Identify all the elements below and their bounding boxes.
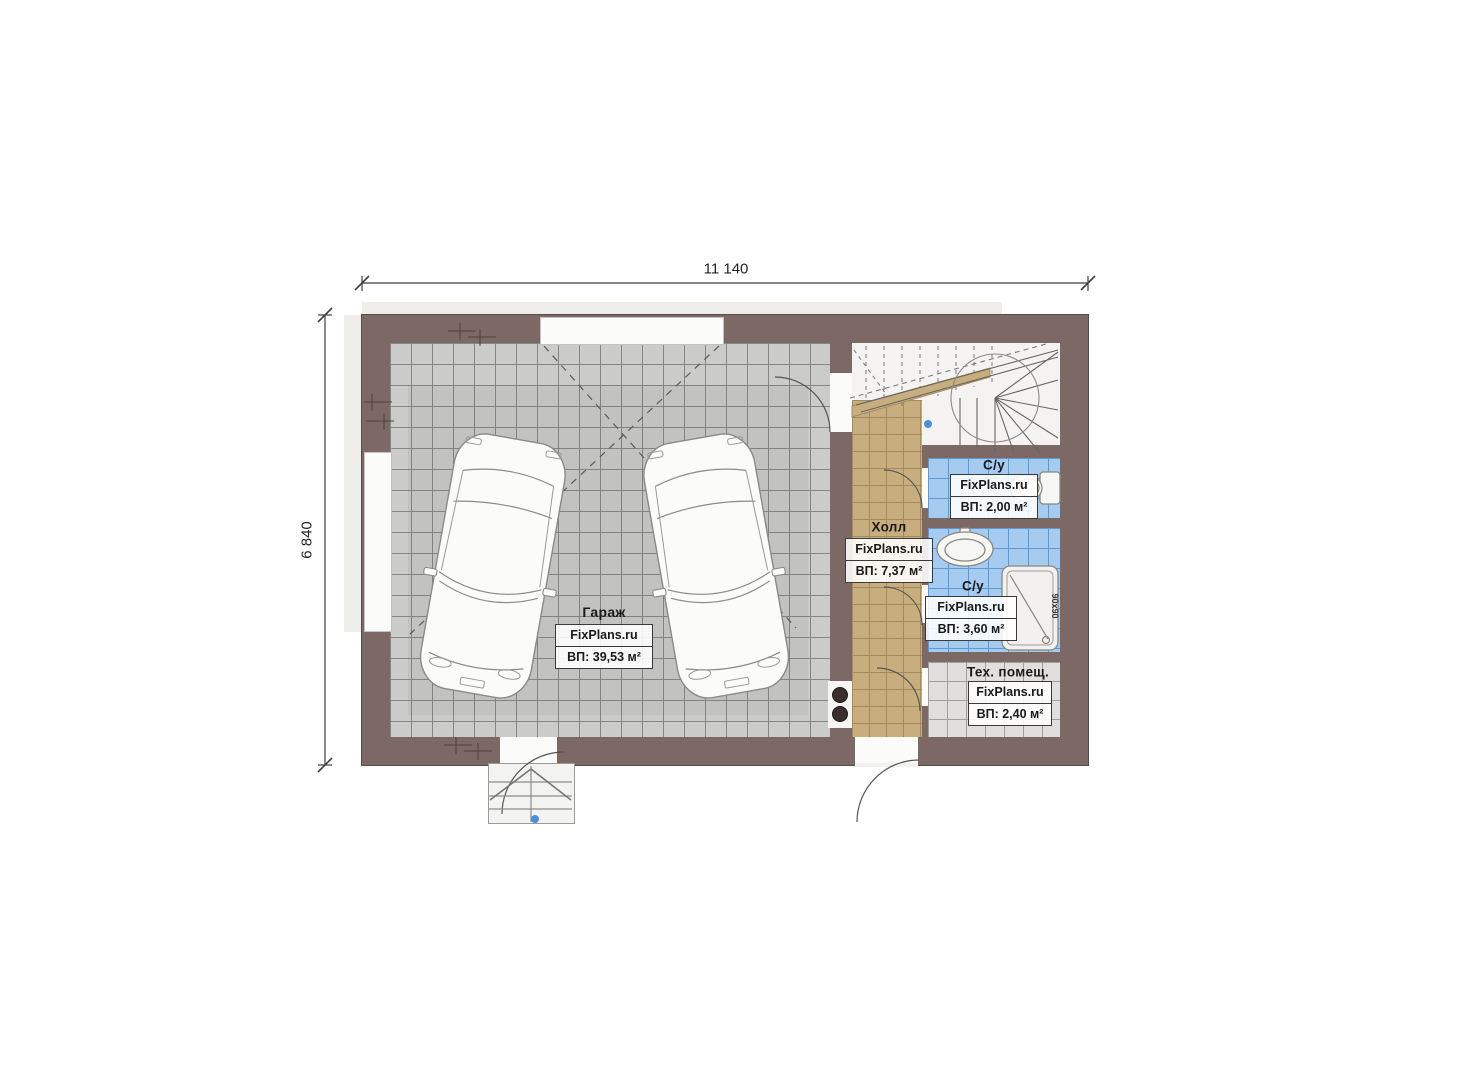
hall-area: ВП: 7,37 м² [846,560,932,582]
garage-door-opening [540,317,724,345]
tech-room-name: Тех. помещ. [967,665,1049,680]
garage-watermark: FixPlans.ru [556,625,652,646]
door-bathroom-small [922,468,928,508]
tech-room-info-box: FixPlans.ru ВП: 2,40 м² [968,681,1052,726]
door-garage-hall [830,373,852,432]
garage-name: Гараж [582,604,625,620]
bathroom-large-info-box: FixPlans.ru ВП: 3,60 м² [925,596,1017,641]
bathroom-small-name: С/у [983,458,1005,473]
bathroom-large-area: ВП: 3,60 м² [926,618,1016,640]
entrance-threshold [855,763,918,767]
dimension-height-label: 6 840 [299,521,316,559]
dimension-width-label: 11 140 [704,261,749,278]
door-tech-room [922,668,928,706]
exterior-strip-top [362,302,1002,315]
window-left [364,452,392,632]
door-main-entrance [855,737,918,763]
bathroom-large-watermark: FixPlans.ru [926,597,1016,618]
side-entrance-steps [488,763,575,824]
tech-room-watermark: FixPlans.ru [969,682,1051,703]
tech-room-area: ВП: 2,40 м² [969,703,1051,725]
bathroom-large-name: С/у [962,579,984,594]
garage-area: ВП: 39,53 м² [556,646,652,668]
floor-plan: 90x90 11 140 6 840 Гараж FixPlans.ru ВП:… [0,0,1474,1080]
door-garage-side [500,737,557,763]
hall-watermark: FixPlans.ru [846,539,932,560]
bathroom-small-watermark: FixPlans.ru [951,475,1037,496]
hall-name: Холл [871,520,906,535]
dimension-line-left [318,308,332,772]
bathroom-small-area: ВП: 2,00 м² [951,496,1037,518]
bathroom-small-info-box: FixPlans.ru ВП: 2,00 м² [950,474,1038,519]
hall-info-box: FixPlans.ru ВП: 7,37 м² [845,538,933,583]
dimension-line-top [355,276,1095,291]
garage-info-box: FixPlans.ru ВП: 39,53 м² [555,624,653,669]
exterior-strip-left [344,315,362,632]
